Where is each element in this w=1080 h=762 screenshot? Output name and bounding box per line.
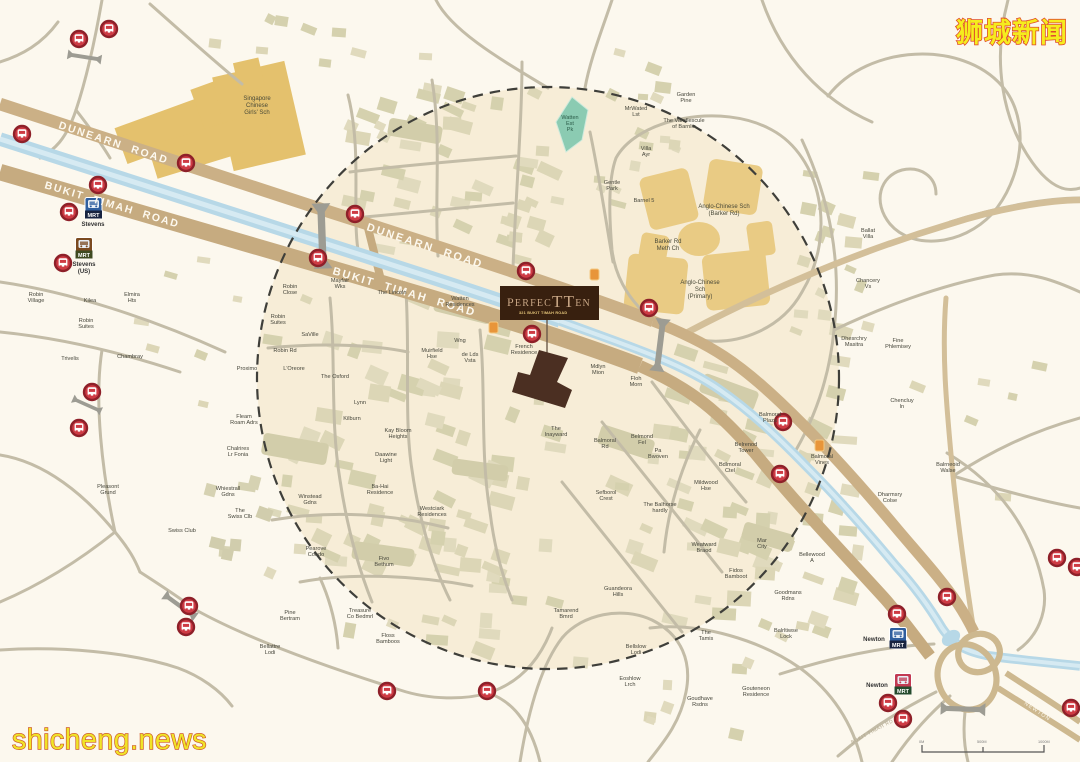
svg-text:Bwoven: Bwoven bbox=[648, 454, 668, 460]
svg-text:ln: ln bbox=[900, 404, 904, 410]
svg-text:Vsta: Vsta bbox=[464, 358, 476, 364]
svg-text:Trivelis: Trivelis bbox=[61, 356, 79, 362]
svg-text:Hills: Hills bbox=[613, 592, 624, 598]
svg-text:Singapore: Singapore bbox=[243, 96, 271, 102]
svg-text:Rdns: Rdns bbox=[781, 596, 794, 602]
svg-text:Light: Light bbox=[380, 458, 393, 464]
svg-text:Hse: Hse bbox=[701, 486, 711, 492]
svg-text:狮城新闻: 狮城新闻 bbox=[956, 17, 1068, 48]
svg-text:Newton: Newton bbox=[866, 683, 888, 689]
svg-text:(US): (US) bbox=[78, 269, 90, 275]
svg-text:Swiss Clb: Swiss Clb bbox=[228, 514, 253, 520]
svg-text:Hse: Hse bbox=[427, 354, 437, 360]
svg-text:Wng: Wng bbox=[454, 338, 466, 344]
svg-text:Lodi: Lodi bbox=[265, 650, 276, 656]
svg-text:Swiss Club: Swiss Club bbox=[168, 528, 196, 534]
svg-text:Walse: Walse bbox=[940, 468, 955, 474]
svg-text:Residence: Residence bbox=[511, 350, 537, 356]
svg-text:Stevens: Stevens bbox=[72, 262, 96, 268]
svg-text:Bamboos: Bamboos bbox=[376, 639, 400, 645]
svg-text:Ctel: Ctel bbox=[725, 468, 735, 474]
svg-text:Newton: Newton bbox=[863, 637, 885, 643]
svg-text:Bethum: Bethum bbox=[374, 562, 394, 568]
svg-text:Bamboot: Bamboot bbox=[725, 574, 748, 580]
svg-text:Braod: Braod bbox=[697, 548, 712, 554]
svg-text:Crest: Crest bbox=[599, 496, 613, 502]
svg-text:Mion: Mion bbox=[592, 370, 604, 376]
svg-text:Suites: Suites bbox=[78, 324, 94, 330]
svg-text:(Barker Rd): (Barker Rd) bbox=[708, 211, 739, 217]
svg-text:Rsdns: Rsdns bbox=[692, 702, 708, 708]
svg-text:Kilea: Kilea bbox=[84, 298, 97, 304]
svg-text:Bmrd: Bmrd bbox=[559, 614, 572, 620]
svg-text:The Osford: The Osford bbox=[321, 374, 349, 380]
svg-text:MRT: MRT bbox=[897, 689, 910, 695]
svg-text:Chinese: Chinese bbox=[246, 103, 269, 109]
svg-text:Morn: Morn bbox=[630, 382, 643, 388]
svg-text:Proximo: Proximo bbox=[237, 366, 258, 372]
svg-text:Hts: Hts bbox=[128, 298, 137, 304]
svg-text:Colse: Colse bbox=[883, 498, 897, 504]
svg-text:Barker Rd: Barker Rd bbox=[654, 239, 681, 245]
svg-text:0M: 0M bbox=[919, 740, 924, 744]
svg-text:Roam Adrs: Roam Adrs bbox=[230, 420, 258, 426]
svg-text:Lock: Lock bbox=[780, 634, 792, 640]
svg-text:Suites: Suites bbox=[270, 320, 286, 326]
svg-text:City: City bbox=[757, 544, 767, 550]
svg-text:Heights: Heights bbox=[389, 434, 408, 440]
svg-text:Girls' Sch: Girls' Sch bbox=[244, 110, 269, 116]
svg-text:Park: Park bbox=[606, 186, 618, 192]
svg-text:Sch: Sch bbox=[695, 287, 705, 293]
svg-text:MRT: MRT bbox=[892, 643, 905, 649]
svg-text:A: A bbox=[810, 558, 814, 564]
svg-text:Residence: Residence bbox=[367, 490, 393, 496]
svg-text:Tamis: Tamis bbox=[699, 636, 714, 642]
svg-text:500M: 500M bbox=[977, 740, 987, 744]
svg-text:Phlemisey: Phlemisey bbox=[885, 344, 911, 350]
svg-text:Chambray: Chambray bbox=[117, 354, 143, 360]
svg-text:Ayr: Ayr bbox=[642, 152, 650, 158]
svg-text:1000M: 1000M bbox=[1038, 740, 1050, 744]
svg-text:Villa: Villa bbox=[863, 234, 874, 240]
svg-text:Kilburn: Kilburn bbox=[343, 416, 360, 422]
svg-text:Rd: Rd bbox=[601, 444, 608, 450]
svg-text:Lr Fonia: Lr Fonia bbox=[228, 452, 249, 458]
svg-text:Grund: Grund bbox=[100, 490, 116, 496]
svg-text:Tower: Tower bbox=[739, 448, 754, 454]
svg-text:Residences: Residences bbox=[445, 302, 474, 308]
svg-text:Anglo-Chinese: Anglo-Chinese bbox=[680, 280, 720, 286]
svg-text:Stevens: Stevens bbox=[81, 222, 105, 228]
svg-text:Pine: Pine bbox=[680, 98, 691, 104]
svg-text:Fel: Fel bbox=[638, 440, 646, 446]
svg-text:Lrch: Lrch bbox=[625, 682, 636, 688]
svg-text:MRT: MRT bbox=[78, 253, 91, 259]
svg-text:Meth Ch: Meth Ch bbox=[657, 246, 680, 252]
svg-text:L'Oreore: L'Oreore bbox=[283, 366, 305, 372]
svg-text:Village: Village bbox=[28, 298, 45, 304]
svg-text:Condo: Condo bbox=[308, 552, 324, 558]
svg-text:Close: Close bbox=[283, 290, 297, 296]
svg-text:Barnel 5: Barnel 5 bbox=[634, 198, 655, 204]
svg-text:Residences: Residences bbox=[417, 512, 446, 518]
svg-text:Residence: Residence bbox=[743, 692, 769, 698]
svg-text:Bertram: Bertram bbox=[280, 616, 300, 622]
svg-text:of Barnlin: of Barnlin bbox=[672, 124, 696, 130]
svg-text:Vines: Vines bbox=[815, 460, 829, 466]
svg-text:shicheng.news: shicheng.news bbox=[12, 724, 207, 756]
svg-text:SaVille: SaVille bbox=[301, 332, 318, 338]
svg-text:Lst: Lst bbox=[632, 112, 640, 118]
svg-text:(Primary): (Primary) bbox=[688, 294, 713, 300]
svg-text:MRT: MRT bbox=[88, 213, 101, 219]
svg-text:Lodi: Lodi bbox=[631, 650, 642, 656]
svg-text:Anglo-Chinese Sch: Anglo-Chinese Sch bbox=[698, 204, 749, 210]
svg-text:Robin Rd: Robin Rd bbox=[273, 348, 296, 354]
svg-text:321 BUKIT TIMAH ROAD: 321 BUKIT TIMAH ROAD bbox=[519, 311, 567, 315]
svg-text:Pk: Pk bbox=[567, 127, 574, 133]
svg-text:Lynn: Lynn bbox=[354, 400, 366, 406]
svg-text:Gdns: Gdns bbox=[303, 500, 317, 506]
svg-text:Plaza: Plaza bbox=[763, 418, 778, 424]
svg-text:Masitra: Masitra bbox=[845, 342, 864, 348]
svg-text:hardly: hardly bbox=[652, 508, 667, 514]
svg-text:Wks: Wks bbox=[335, 284, 346, 290]
svg-text:The Lincoln: The Lincoln bbox=[378, 290, 407, 296]
svg-text:Vs: Vs bbox=[865, 284, 872, 290]
svg-text:Co Bedmrl: Co Bedmrl bbox=[347, 614, 373, 620]
svg-text:Inayward: Inayward bbox=[545, 432, 568, 438]
svg-text:Gdns: Gdns bbox=[221, 492, 235, 498]
